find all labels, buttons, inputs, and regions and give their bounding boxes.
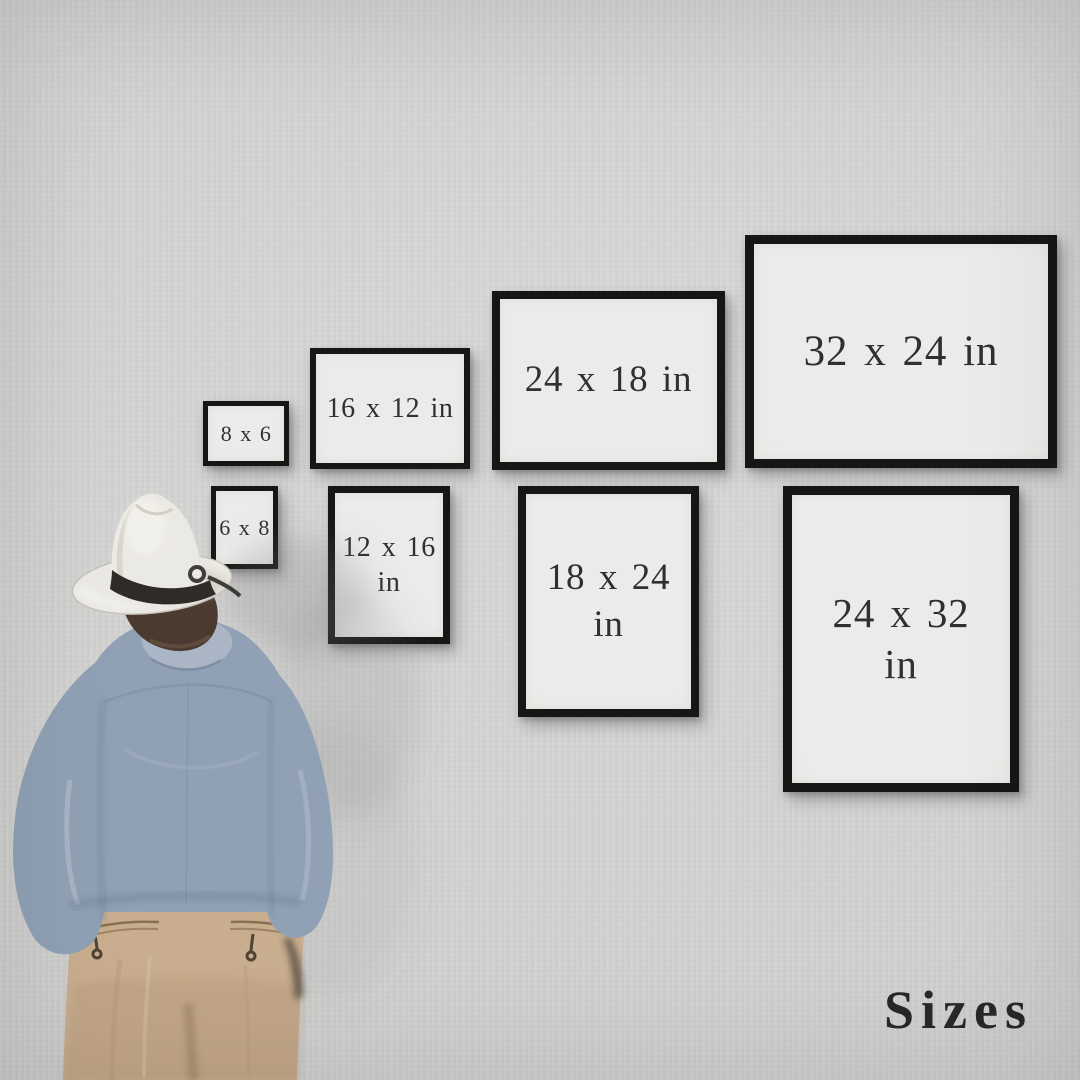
- frame-size-label: 32 x 24 in: [804, 325, 999, 379]
- frame-32x24: 32 x 24 in: [745, 235, 1057, 468]
- pants: [63, 878, 307, 1080]
- frame-size-label: 24 x 18 in: [525, 357, 693, 403]
- frame-size-label: 12 x 16 in: [342, 530, 436, 600]
- frame-24x18: 24 x 18 in: [492, 291, 725, 470]
- frame-size-label: 24 x 32 in: [833, 588, 970, 691]
- sizes-title: Sizes: [884, 979, 1033, 1041]
- hair: [121, 594, 218, 651]
- frame-size-label: 6 x 8: [219, 514, 270, 542]
- frame-6x8: 6 x 8: [211, 486, 278, 569]
- frame-size-label: 18 x 24 in: [547, 555, 671, 648]
- frame-18x24: 18 x 24 in: [518, 486, 699, 717]
- mockup-scene: 8 x 6 6 x 8 16 x 12 in 12 x 16 in 24 x 1…: [0, 0, 1080, 1080]
- frame-8x6: 8 x 6: [203, 401, 289, 466]
- frame-24x32: 24 x 32 in: [783, 486, 1019, 792]
- frame-16x12: 16 x 12 in: [310, 348, 470, 469]
- shirt: [13, 616, 333, 954]
- frame-12x16: 12 x 16 in: [328, 486, 450, 644]
- frame-size-label: 8 x 6: [221, 420, 272, 448]
- frame-size-label: 16 x 12 in: [327, 391, 454, 426]
